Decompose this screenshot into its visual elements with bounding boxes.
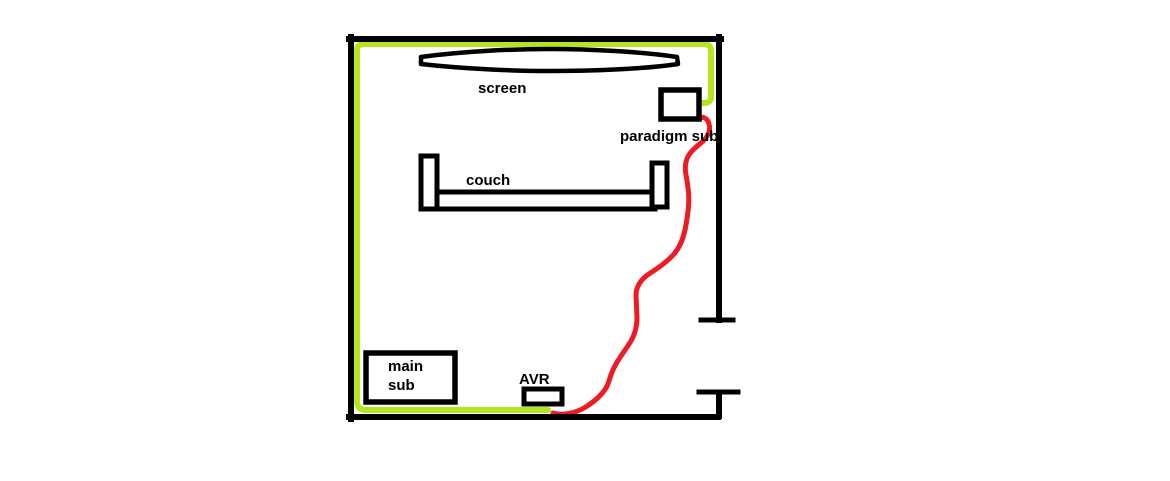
screen-label: screen <box>478 80 526 97</box>
floorplan-svg: screen paradigm sub couch main sub AVR <box>0 0 1170 481</box>
couch-seat <box>435 192 655 209</box>
paradigm-sub-box <box>661 90 699 119</box>
room-layout-drawing: screen paradigm sub couch main sub AVR <box>0 0 1170 481</box>
main-sub-label-line1: main <box>388 358 423 375</box>
furniture <box>366 49 699 404</box>
labels: screen paradigm sub couch main sub AVR <box>388 80 718 394</box>
screen-shape <box>421 49 678 71</box>
main-sub-label-line2: sub <box>388 377 415 394</box>
avr-box <box>524 389 562 404</box>
couch-armrest-right <box>652 163 667 207</box>
avr-label: AVR <box>519 371 550 388</box>
sub-cable-red <box>553 117 710 414</box>
couch-label: couch <box>466 172 510 189</box>
couch-armrest-left <box>421 156 437 209</box>
paradigm-sub-label: paradigm sub <box>620 128 718 145</box>
